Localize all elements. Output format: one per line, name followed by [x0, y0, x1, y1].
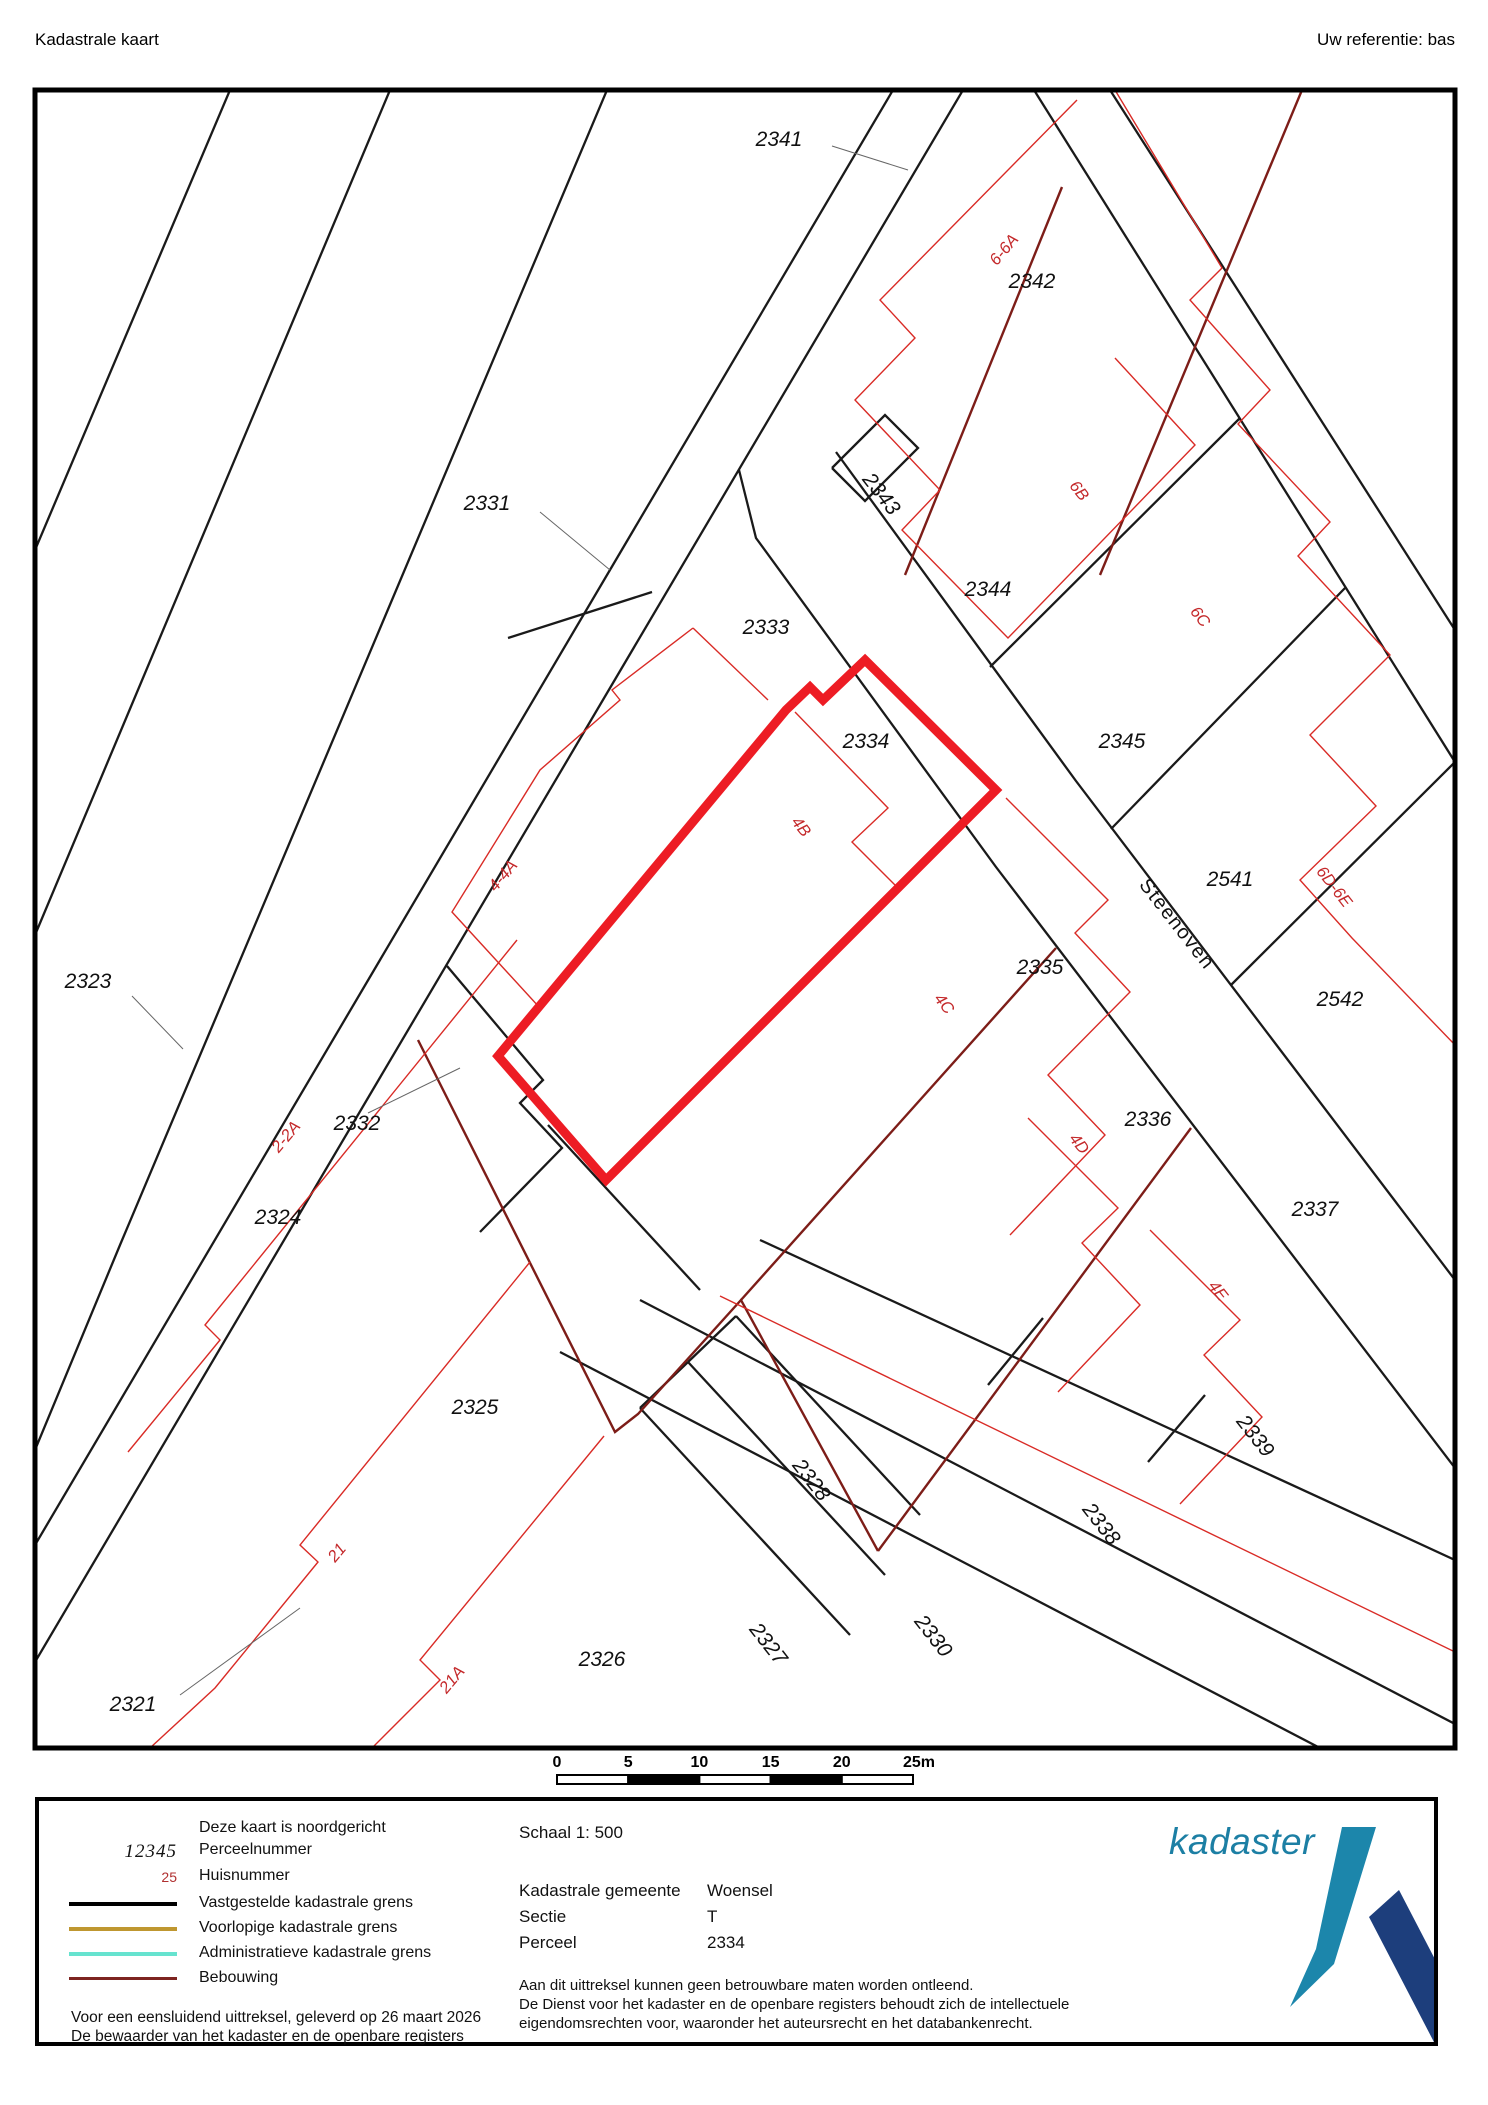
cadastral-boundary-line — [739, 470, 1455, 1468]
parcel-label-2335: 2335 — [1016, 956, 1064, 979]
building-red-line — [795, 712, 998, 888]
scale-label-10: 10 — [691, 1754, 709, 1771]
building-red-line — [128, 940, 517, 1452]
building-red-line — [720, 1296, 1455, 1652]
building-red-line — [372, 1436, 604, 1748]
gemeente-label: Kadastrale gemeente — [519, 1881, 681, 1901]
sectie-value: T — [707, 1907, 717, 1927]
cadastral-boundary-line — [508, 592, 652, 638]
housenumber-label-21A: 21A — [435, 1663, 468, 1698]
parcel-label-2338: 2338 — [1077, 1498, 1125, 1550]
housenumber-label-2-2A: 2-2A — [267, 1118, 304, 1157]
cadastral-map[interactable]: 2341234223432344234525412542233123332334… — [0, 0, 1488, 2105]
parcel-label-2343: 2343 — [857, 468, 905, 520]
disclaimer-line-3: eigendomsrechten voor, waaronder het aut… — [519, 2015, 1033, 2032]
housenumber-label-4B: 4B — [788, 813, 815, 840]
parcel-label-2325: 2325 — [451, 1396, 499, 1419]
housenumber-label-4D: 4D — [1065, 1130, 1092, 1158]
label-leader-line — [832, 146, 908, 170]
cadastral-boundary-line — [548, 1125, 700, 1290]
perceel-label: Perceel — [519, 1933, 577, 1953]
cadastral-boundary-line — [988, 1318, 1043, 1385]
kadaster-logo: kadaster — [1114, 1809, 1434, 2044]
map-lines — [35, 90, 1455, 1748]
cadastral-boundary-line — [688, 1316, 736, 1362]
housenumber-label-21: 21 — [324, 1540, 350, 1566]
parcel-label-2327: 2327 — [744, 1618, 792, 1671]
disclaimer-line-1: Aan dit uittreksel kunnen geen betrouwba… — [519, 1977, 973, 1994]
housenumber-label-6D-6E: 6D-6E — [1312, 863, 1356, 912]
parcel-label-2541: 2541 — [1206, 868, 1254, 891]
keeper-note: De bewaarder van het kadaster en de open… — [71, 2028, 464, 2046]
label-leader-line — [540, 512, 610, 570]
parcel-label-2328: 2328 — [787, 1454, 835, 1506]
perceelnummer-sample: 12345 — [69, 1841, 177, 1863]
scale-bar: 0510152025m — [553, 1754, 935, 1784]
housenumber-label-6-6A: 6-6A — [986, 231, 1022, 269]
parcel-label-2342: 2342 — [1008, 270, 1056, 293]
housenumber-label-6C: 6C — [1186, 603, 1213, 631]
building-red-line — [1028, 1118, 1140, 1392]
cadastral-boundary-line — [836, 452, 1455, 1280]
parcel-label-2324: 2324 — [254, 1206, 302, 1229]
parcel-label-2334: 2334 — [842, 730, 890, 753]
parcel-label-2341: 2341 — [755, 128, 803, 151]
highlighted-parcel-outline[interactable] — [498, 660, 996, 1180]
building-dark-line — [1100, 90, 1302, 575]
map-border — [35, 90, 1455, 1748]
cadastral-boundary-line — [35, 90, 893, 1545]
cadastral-boundary-line — [990, 418, 1240, 667]
parcel-label-2321: 2321 — [109, 1693, 157, 1716]
sectie-label: Sectie — [519, 1907, 566, 1927]
delivery-note: Voor een eensluidend uittreksel, gelever… — [71, 2009, 481, 2027]
housenumber-label-6B: 6B — [1066, 477, 1093, 504]
scale-text: Schaal 1: 500 — [519, 1823, 623, 1843]
building-red-line — [452, 628, 693, 1056]
parcel-label-2337: 2337 — [1291, 1198, 1340, 1221]
building-dark-line — [878, 1128, 1191, 1551]
parcel-label-2323: 2323 — [64, 970, 112, 993]
disclaimer-line-2: De Dienst voor het kadaster en de openba… — [519, 1996, 1069, 2013]
parcel-label-2339: 2339 — [1231, 1410, 1279, 1462]
cadastral-boundary-line — [1148, 1395, 1205, 1462]
cadastral-boundary-line — [640, 1300, 1455, 1724]
parcel-label-2332: 2332 — [333, 1112, 381, 1135]
scale-label-15: 15 — [762, 1754, 780, 1771]
huisnummer-sample: 25 — [69, 1869, 177, 1885]
parcel-label-2345: 2345 — [1098, 730, 1146, 753]
parcel-label-2326: 2326 — [578, 1648, 626, 1671]
parcel-label-2542: 2542 — [1316, 988, 1364, 1011]
scale-label-0: 0 — [553, 1754, 562, 1771]
parcel-label-2336: 2336 — [1124, 1108, 1172, 1131]
gold-line-swatch — [69, 1927, 177, 1931]
maroon-line-swatch — [69, 1977, 177, 1980]
cadastral-boundary-line — [35, 90, 230, 550]
cadastral-boundary-line — [688, 1362, 885, 1575]
housenumber-label-4C: 4C — [930, 990, 957, 1018]
label-leader-line — [180, 1608, 300, 1695]
housenumber-label-4-4A: 4-4A — [485, 857, 521, 895]
page: Kadastrale kaart Uw referentie: bas 2341… — [0, 0, 1488, 2105]
building-dark-line — [905, 187, 1062, 575]
cyan-line-swatch — [69, 1952, 177, 1956]
parcel-label-2331: 2331 — [463, 492, 511, 515]
cadastral-boundary-line — [560, 1352, 1320, 1748]
parcel-label-2344: 2344 — [964, 578, 1012, 601]
cadastral-boundary-line — [1034, 90, 1455, 762]
parcel-label-2330: 2330 — [909, 1610, 957, 1662]
kadaster-logo-text: kadaster — [1169, 1821, 1315, 1863]
label-leader-line — [132, 996, 183, 1049]
map-legend-panel: Deze kaart is noordgericht 12345 Perceel… — [35, 1797, 1438, 2046]
building-red-line — [855, 100, 1195, 638]
housenumber-label-4E: 4E — [1205, 1277, 1232, 1305]
gemeente-value: Woensel — [707, 1881, 773, 1901]
cadastral-boundary-line — [1110, 90, 1455, 630]
scale-label-5: 5 — [624, 1754, 633, 1771]
scale-label-25m: 25m — [903, 1754, 935, 1771]
parcel-label-2333: 2333 — [742, 616, 790, 639]
cadastral-boundary-line — [35, 90, 390, 935]
scale-label-20: 20 — [833, 1754, 851, 1771]
perceel-value: 2334 — [707, 1933, 745, 1953]
cadastral-boundary-line — [1111, 588, 1345, 829]
black-line-swatch — [69, 1902, 177, 1906]
cadastral-boundary-line — [1231, 762, 1455, 985]
